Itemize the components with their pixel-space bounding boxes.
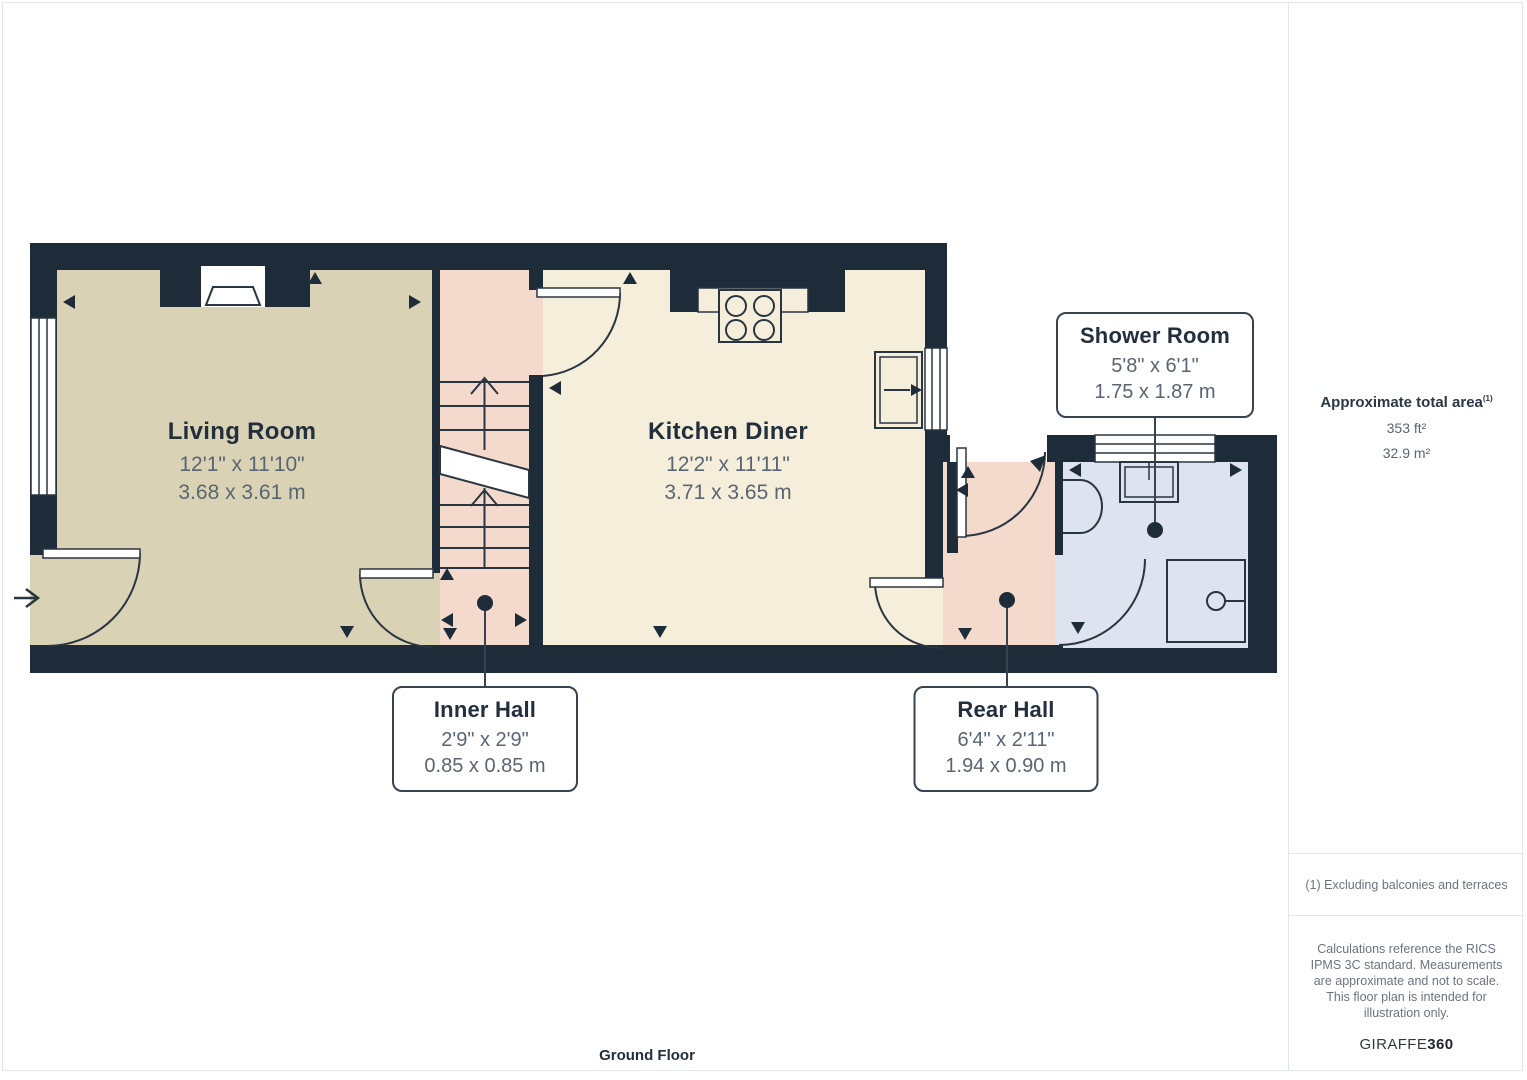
shower-anchor-dot — [1147, 522, 1163, 538]
kitchen-diner-metric: 3.71 x 3.65 m — [648, 479, 808, 507]
rear-hall-callout: Rear Hall 6'4" x 2'11" 1.94 x 0.90 m — [914, 686, 1099, 792]
footnote-marker: (1) — [1483, 394, 1493, 403]
shower-tray — [1167, 560, 1245, 642]
kitchen-diner-name: Kitchen Diner — [648, 418, 808, 446]
living-room-window — [31, 318, 56, 495]
shower-room-name: Shower Room — [1066, 323, 1244, 349]
inner-hall-imperial: 2'9" x 2'9" — [402, 727, 568, 753]
total-area-title: Approximate total area(1) — [1320, 394, 1492, 411]
kitchen-appliance — [875, 352, 922, 428]
shower-room-metric: 1.75 x 1.87 m — [1066, 379, 1244, 405]
living-room-imperial: 12'1" x 11'10" — [168, 451, 317, 479]
rear-hall-name: Rear Hall — [924, 697, 1089, 723]
rearhall-shower-opening — [1055, 555, 1063, 645]
sink — [1120, 462, 1178, 502]
total-area-section: Approximate total area(1) 353 ft² 32.9 m… — [1289, 2, 1524, 853]
total-area-imperial: 353 ft² — [1387, 420, 1427, 436]
disclaimer-section: Calculations reference the RICS IPMS 3C … — [1289, 915, 1524, 1071]
inner-hall-name: Inner Hall — [402, 697, 568, 723]
living-room-metric: 3.68 x 3.61 m — [168, 479, 317, 507]
living-room-name: Living Room — [168, 418, 317, 446]
brand-name: GIRAFFE — [1359, 1036, 1427, 1053]
total-area-metric: 32.9 m² — [1383, 445, 1430, 461]
fireplace — [201, 266, 265, 307]
shower-room-callout: Shower Room 5'8" x 6'1" 1.75 x 1.87 m — [1056, 312, 1254, 418]
kitchen-window — [925, 348, 947, 430]
floorplan-drawing — [0, 0, 1288, 1080]
floorplan-page: Living Room 12'1" x 11'10" 3.68 x 3.61 m… — [0, 0, 1527, 1080]
inner-hall-callout: Inner Hall 2'9" x 2'9" 0.85 x 0.85 m — [392, 686, 578, 792]
info-sidebar: Approximate total area(1) 353 ft² 32.9 m… — [1288, 2, 1524, 1071]
footnote-text: (1) Excluding balconies and terraces — [1305, 878, 1507, 892]
kitchen-diner-label: Kitchen Diner 12'2" x 11'11" 3.71 x 3.65… — [648, 418, 808, 506]
hob — [719, 290, 781, 342]
inner-hall-metric: 0.85 x 0.85 m — [402, 753, 568, 779]
rear-hall-anchor-dot — [999, 592, 1015, 608]
brand-suffix: 360 — [1427, 1036, 1453, 1053]
footnote-section: (1) Excluding balconies and terraces — [1289, 853, 1524, 915]
kitchen-diner-imperial: 12'2" x 11'11" — [648, 451, 808, 479]
living-hall-opening — [432, 573, 440, 645]
rear-hall-imperial: 6'4" x 2'11" — [924, 727, 1089, 753]
living-room-label: Living Room 12'1" x 11'10" 3.68 x 3.61 m — [168, 418, 317, 506]
hall-kitchen-opening — [529, 290, 543, 375]
shower-room-imperial: 5'8" x 6'1" — [1066, 353, 1244, 379]
rear-hall-metric: 1.94 x 0.90 m — [924, 753, 1089, 779]
toilet — [1063, 480, 1102, 533]
inner-hall-anchor-dot — [477, 595, 493, 611]
floor-title: Ground Floor — [599, 1047, 695, 1064]
disclaimer-text: Calculations reference the RICS IPMS 3C … — [1304, 941, 1509, 1021]
brand-logo: GIRAFFE360 — [1304, 1035, 1509, 1054]
